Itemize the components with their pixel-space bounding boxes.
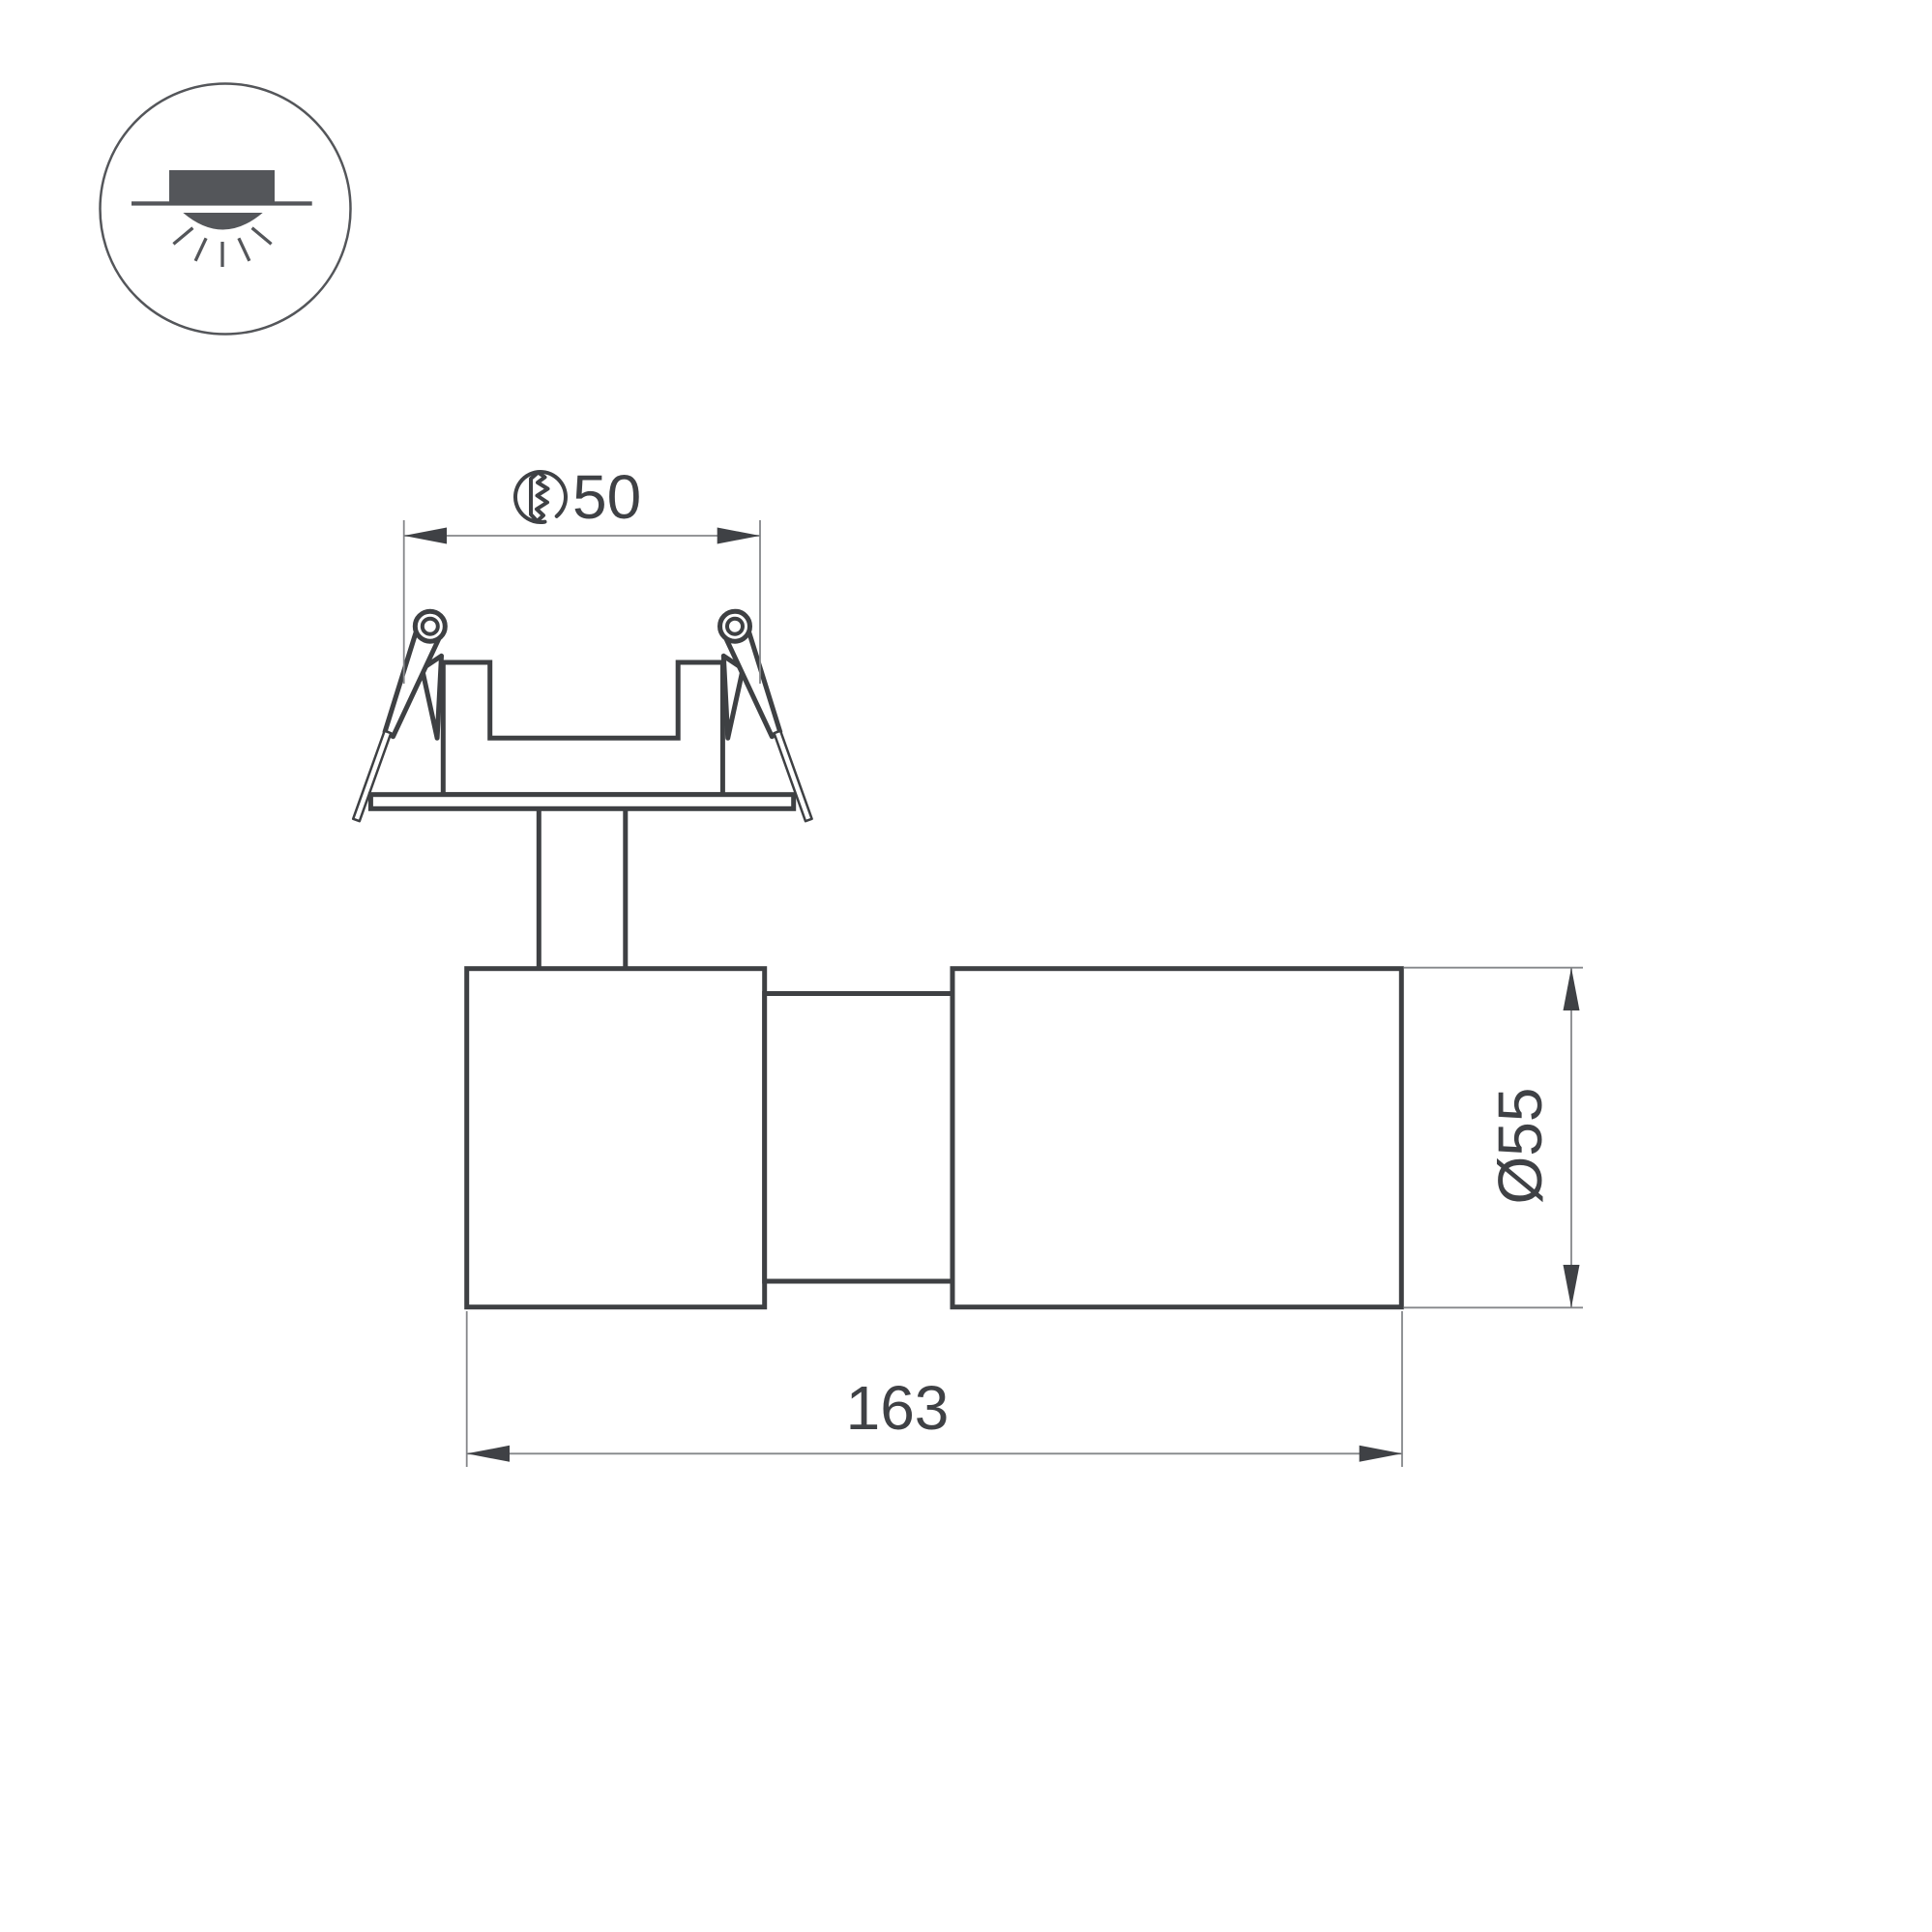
light-ray bbox=[239, 238, 249, 260]
icon-light-dome bbox=[183, 213, 262, 230]
arrowhead-right bbox=[1360, 1446, 1402, 1462]
clip-pivot-hole bbox=[423, 619, 438, 634]
dim-diameter: Ø55 bbox=[1404, 968, 1583, 1308]
arrowhead-left bbox=[467, 1446, 510, 1462]
dimension-drawing: 50 Ø55 163 bbox=[0, 0, 1932, 1932]
luminaire-outline bbox=[353, 611, 1401, 1306]
recessed-downlight-icon bbox=[101, 84, 351, 335]
stem bbox=[539, 808, 626, 968]
arrowhead-up bbox=[1564, 968, 1580, 1010]
hole-cutout-icon bbox=[515, 472, 566, 522]
dim-cutout-lines bbox=[404, 520, 760, 684]
arrowhead-left bbox=[404, 528, 447, 544]
clip-pivot-hole bbox=[727, 619, 743, 634]
body-rear-section bbox=[467, 969, 765, 1307]
technical-drawing-sheet: 50 Ø55 163 bbox=[0, 0, 1932, 1932]
spring-clip-right bbox=[720, 611, 812, 821]
spring-clip-left bbox=[353, 611, 445, 821]
light-ray bbox=[252, 228, 272, 245]
body-middle-section bbox=[765, 994, 952, 1282]
arrowhead-right bbox=[717, 528, 760, 544]
arrowhead-down bbox=[1564, 1265, 1580, 1307]
icon-ceiling-line bbox=[132, 201, 312, 205]
icon-housing-block bbox=[169, 170, 275, 202]
body-front-section bbox=[952, 969, 1401, 1307]
dim-cutout-value: 50 bbox=[572, 462, 641, 532]
cutout-blade bbox=[531, 473, 548, 522]
trim-flange bbox=[370, 795, 793, 809]
dim-cutout: 50 bbox=[404, 462, 760, 684]
icon-circle bbox=[101, 84, 351, 335]
light-ray bbox=[195, 238, 206, 260]
mounting-can bbox=[443, 662, 722, 795]
dim-diameter-value: Ø55 bbox=[1485, 1088, 1555, 1205]
dim-length-value: 163 bbox=[846, 1373, 950, 1443]
light-ray bbox=[173, 228, 192, 245]
icon-light-rays bbox=[173, 228, 271, 267]
dim-length: 163 bbox=[467, 1311, 1402, 1467]
